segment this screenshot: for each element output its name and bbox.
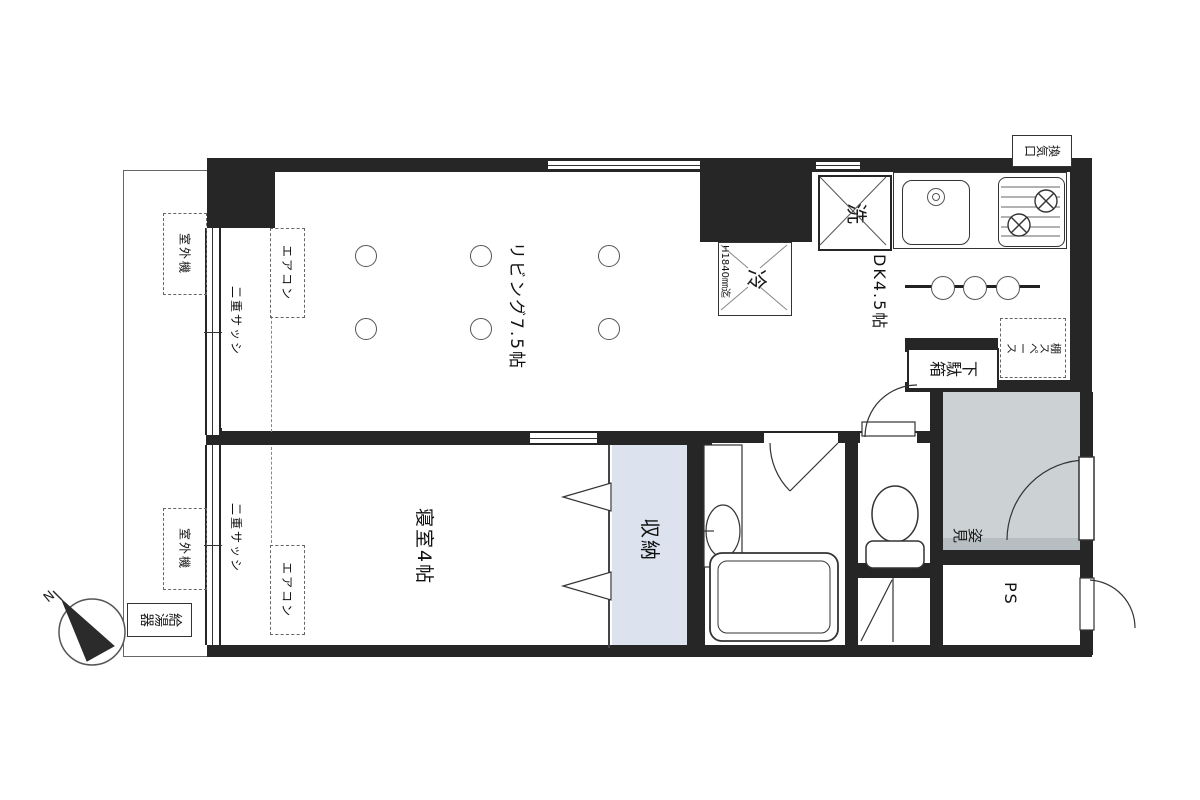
outdoor-unit-box-top: 室外機: [163, 213, 207, 295]
wall-pillar-topleft: [207, 158, 275, 228]
wall-under-toilet: [845, 563, 943, 578]
counter-stool: [996, 276, 1020, 300]
tub-size-label: W1115: [765, 572, 780, 621]
vanity-sink: [704, 445, 742, 567]
toilet: [866, 486, 924, 568]
wall-ps-left: [930, 550, 943, 648]
water-heater-label: 給湯器: [139, 604, 181, 636]
wall-toilet-right: [930, 443, 943, 565]
downlight: [355, 318, 377, 340]
shelf-space-label: 棚スペース: [1006, 319, 1061, 377]
wall-cabinet-left: [845, 578, 858, 648]
toilet-door-opening: [860, 433, 917, 443]
outdoor-unit-label: 室外機: [177, 528, 194, 570]
aircon-label: エアコン: [279, 245, 296, 301]
living-window: [205, 228, 221, 435]
sink-faucet-dot: [932, 193, 940, 201]
top-window-1: [548, 161, 623, 169]
washer-box: 洗: [818, 175, 892, 251]
vent-label: 換気口: [1024, 136, 1060, 166]
top-window-3: [816, 162, 860, 169]
counter-stool: [963, 276, 987, 300]
wall-fridge-shaft: [700, 160, 812, 242]
water-heater-box: 給湯器: [127, 603, 192, 637]
downlight: [598, 318, 620, 340]
double-sash-label-living: 二重サッシ: [228, 286, 245, 356]
aircon-box-bedroom: エアコン: [270, 545, 305, 635]
toilet-door: [862, 385, 917, 437]
wall-ps-top: [930, 550, 1092, 565]
wall-bottom: [207, 645, 1092, 657]
top-window-2: [623, 161, 700, 169]
counter-stool: [931, 276, 955, 300]
shoe-box: 下駄箱: [907, 348, 999, 390]
bedroom-label: 寝室4帖: [412, 508, 439, 585]
closet-door-marks: [563, 483, 611, 600]
downlight: [355, 245, 377, 267]
mirror-label: 姿見: [944, 523, 990, 547]
compass: N: [41, 588, 125, 665]
aircon-label: エアコン: [279, 562, 296, 618]
living-label: リビング7.5帖: [506, 242, 531, 370]
guide-line-bedroom: [271, 447, 272, 543]
shelf-space-box: 棚スペース: [1000, 318, 1066, 378]
wall-right-upper: [1070, 160, 1092, 392]
downlight: [470, 245, 492, 267]
vent-box: 換気口: [1012, 135, 1072, 167]
compass-n-label: N: [41, 588, 58, 606]
fridge-label: 冷: [745, 269, 766, 290]
wall-entry-left-upper: [930, 392, 943, 440]
bedroom-slider-opening: [530, 433, 597, 443]
stove: [998, 177, 1065, 247]
bath-door-opening: [764, 433, 838, 443]
aircon-box-living: エアコン: [270, 228, 305, 318]
closet-front-line: [608, 445, 610, 648]
fridge-height-note: H1840㎜迄: [719, 245, 734, 298]
guide-line-living: [271, 316, 272, 432]
closet-label: 収納: [637, 518, 666, 562]
entry-hall-fill: [943, 392, 1080, 540]
double-sash-label-bedroom: 二重サッシ: [228, 503, 245, 573]
wall-closet-right: [687, 445, 705, 648]
ps-label: PS: [1001, 582, 1020, 606]
outdoor-unit-label: 室外機: [177, 233, 194, 275]
wall-living-bedroom: [207, 431, 712, 445]
bedroom-window: [205, 445, 221, 645]
downlight: [470, 318, 492, 340]
downlight: [598, 245, 620, 267]
shoe-box-label: 下駄箱: [929, 350, 977, 388]
floor-plan: リビング7.5帖 エアコン 二重サッシ 寝室4帖 エアコン 二重サッシ 収納 D…: [0, 0, 1200, 800]
outdoor-unit-box-bottom: 室外機: [163, 508, 207, 590]
bath-door: [770, 443, 838, 491]
wall-right-lower: [1080, 392, 1093, 655]
washer-label: 洗: [844, 202, 867, 225]
wall-toilet-left: [845, 443, 858, 565]
dk-label: DK4.5帖: [869, 254, 893, 330]
under-toilet-cabinet-lines: [861, 578, 893, 642]
